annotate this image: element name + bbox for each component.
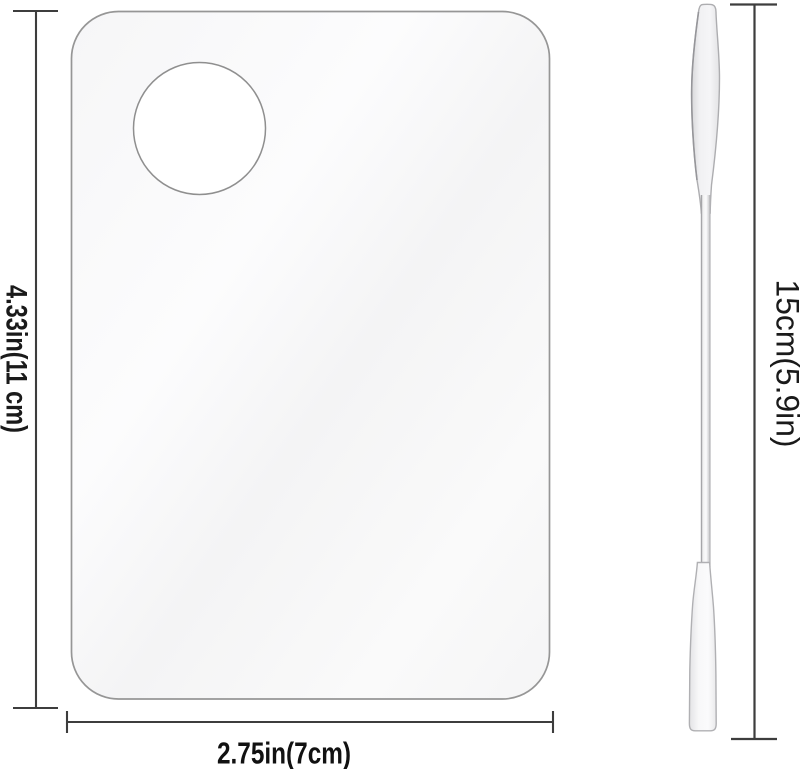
svg-text:15cm(5.9in): 15cm(5.9in) <box>770 280 804 448</box>
svg-text:4.33in(11 cm): 4.33in(11 cm) <box>0 285 33 433</box>
svg-text:2.75in(7cm): 2.75in(7cm) <box>217 736 351 769</box>
